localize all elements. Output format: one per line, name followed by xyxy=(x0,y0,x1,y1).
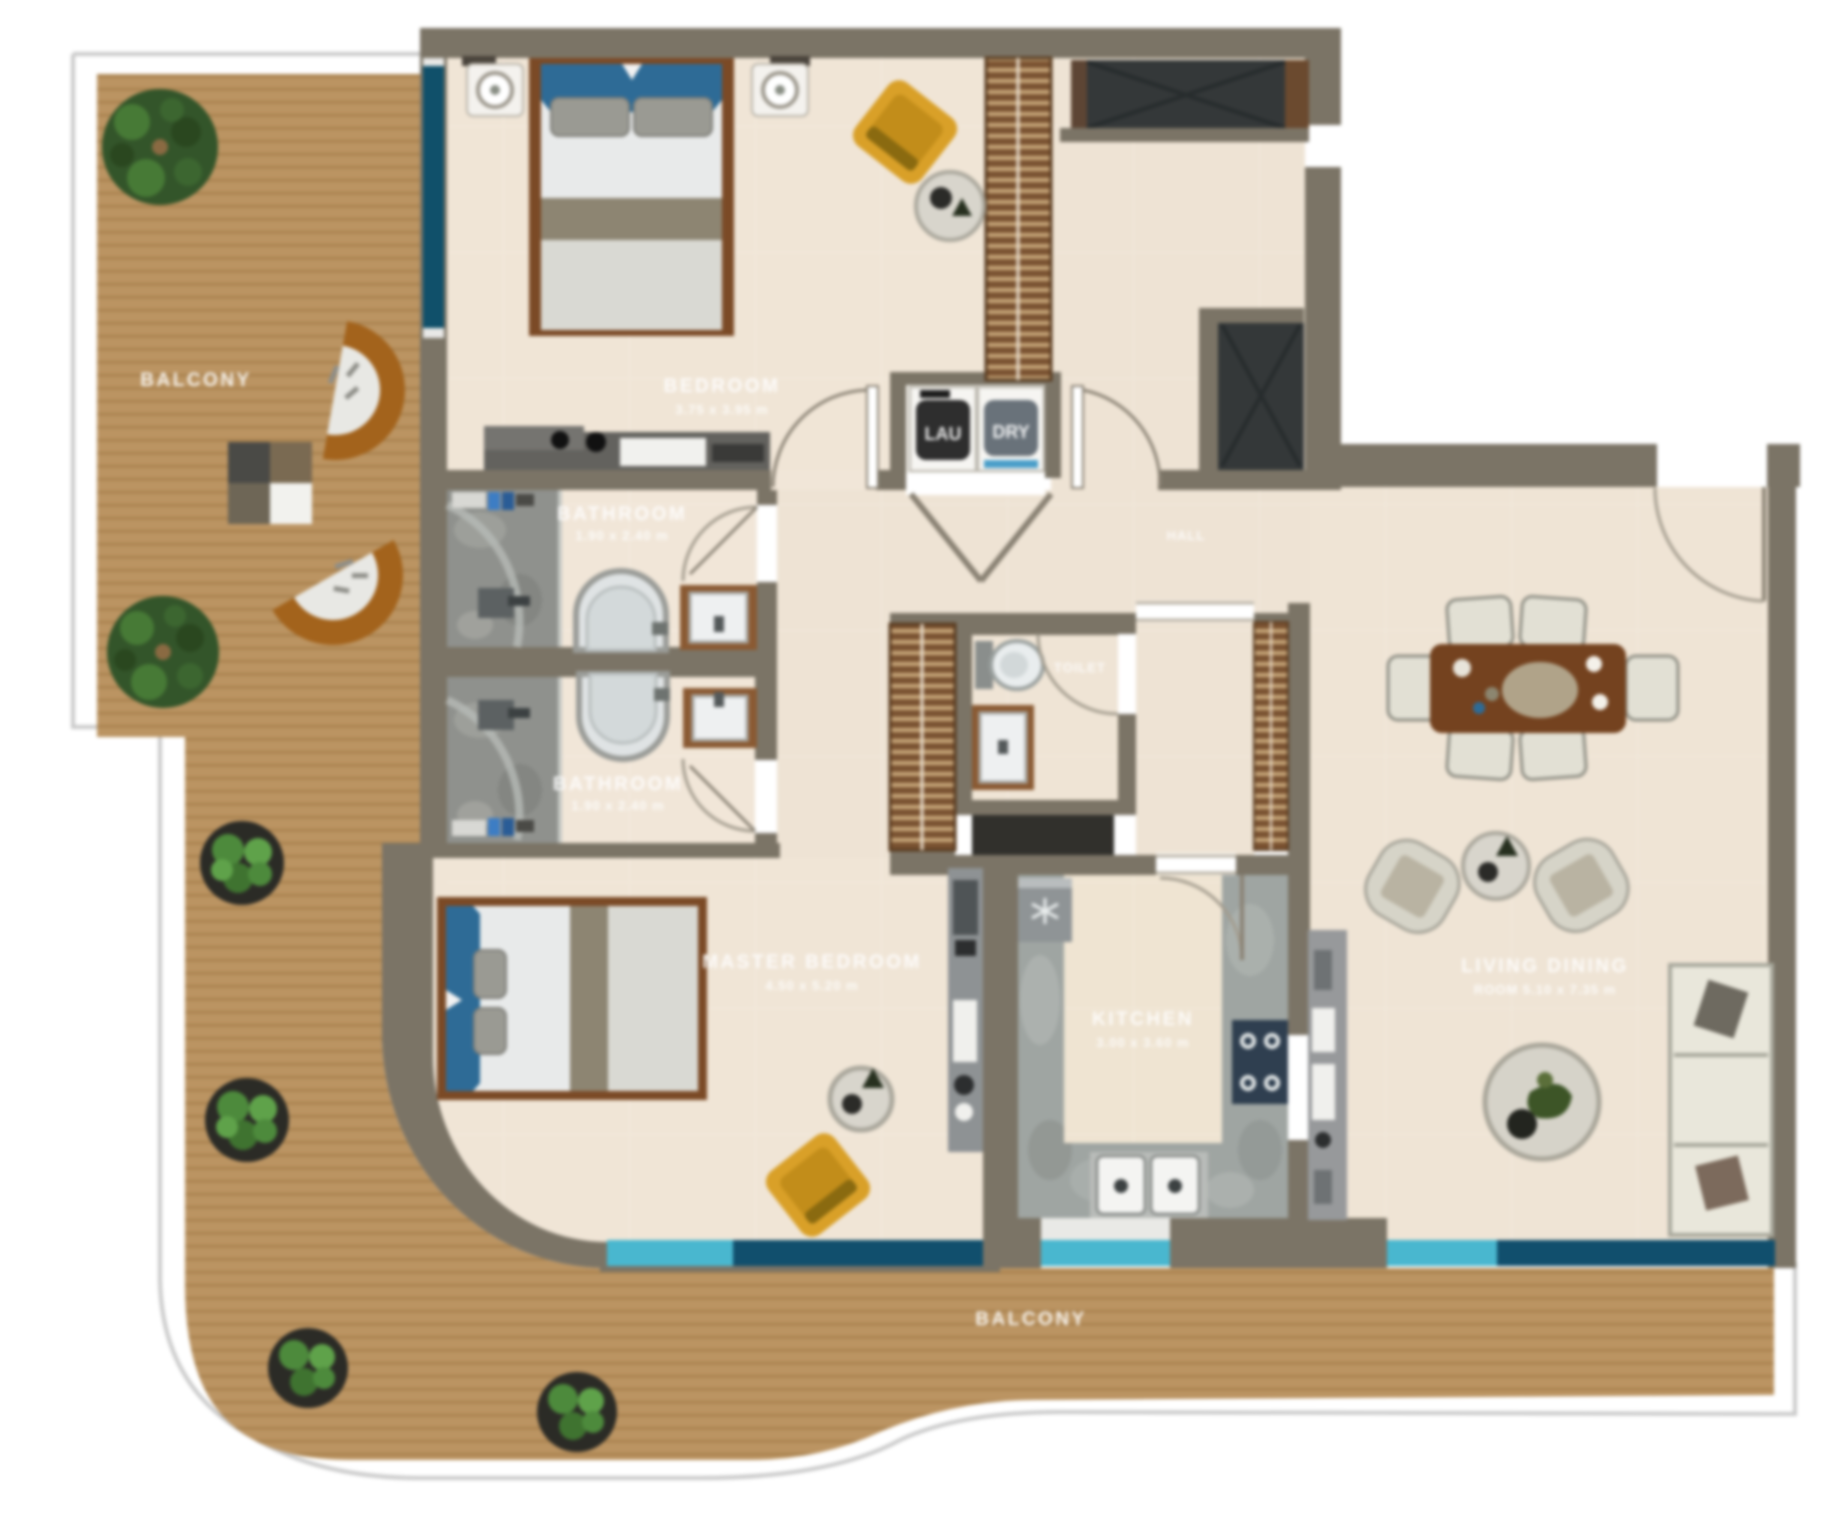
svg-text:ROOM 5.10 x 7.35 m: ROOM 5.10 x 7.35 m xyxy=(1474,982,1616,997)
svg-text:4.50 x 5.20 m: 4.50 x 5.20 m xyxy=(765,978,858,993)
svg-text:3.00 x 3.60 m: 3.00 x 3.60 m xyxy=(1096,1035,1189,1050)
svg-text:1.90 x 2.40 m: 1.90 x 2.40 m xyxy=(575,528,668,543)
svg-text:BATHROOM: BATHROOM xyxy=(557,504,687,525)
svg-text:LAU: LAU xyxy=(925,424,962,444)
svg-text:BATHROOM: BATHROOM xyxy=(553,774,683,795)
svg-text:DRY: DRY xyxy=(992,422,1029,442)
svg-text:TOILET: TOILET xyxy=(1054,660,1106,675)
svg-text:KITCHEN: KITCHEN xyxy=(1092,1009,1194,1030)
svg-text:LIVING DINING: LIVING DINING xyxy=(1461,956,1629,977)
svg-text:MASTER BEDROOM: MASTER BEDROOM xyxy=(702,952,922,973)
svg-text:BALCONY: BALCONY xyxy=(975,1309,1086,1330)
svg-text:BALCONY: BALCONY xyxy=(140,370,251,391)
svg-text:BEDROOM: BEDROOM xyxy=(664,376,781,397)
svg-text:3.75 x 3.95 m: 3.75 x 3.95 m xyxy=(675,402,768,417)
svg-text:HALL: HALL xyxy=(1167,528,1206,543)
svg-text:1.90 x 2.40 m: 1.90 x 2.40 m xyxy=(571,798,664,813)
